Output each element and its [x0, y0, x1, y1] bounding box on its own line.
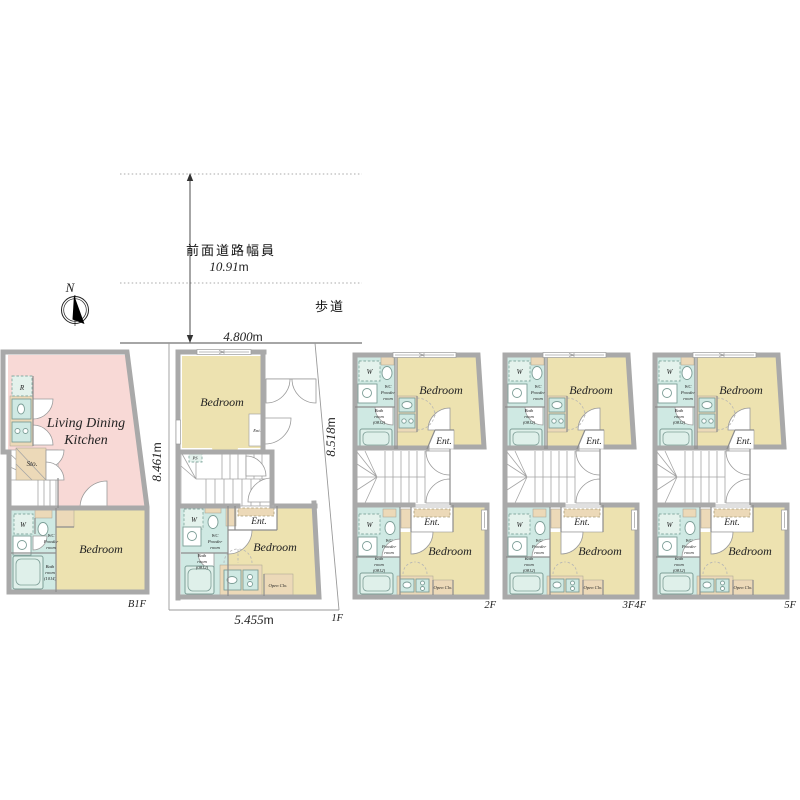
wc-label: room: [534, 550, 544, 555]
toilet-icon: [38, 523, 48, 536]
wc-label: WC: [536, 538, 544, 543]
burner-icon: [702, 419, 706, 423]
ent-label: Ent.: [435, 437, 452, 447]
sink-bowl-icon: [402, 402, 412, 409]
wc-label: WC: [385, 384, 393, 389]
toilet-tank: [683, 509, 696, 517]
room-label-bedroom: Bedroom: [728, 544, 772, 558]
bath-label: room: [197, 559, 207, 564]
room-label-bedroom: Bedroom: [200, 395, 244, 409]
sink-bowl-icon: [702, 402, 712, 409]
wc-label: WC: [48, 533, 56, 538]
toilet-tank: [681, 357, 694, 365]
window-icon: [393, 353, 456, 358]
floor-plan-drawing: 前面道路幅員 10.91m 歩道 4.800m 8.461m 8.518m 5.…: [0, 0, 800, 800]
basin-bowl-icon: [513, 389, 522, 398]
room-label-bedroom: Bedroom: [719, 383, 763, 397]
dim-frontage: 4.800m: [223, 329, 262, 344]
burner-icon: [721, 581, 725, 585]
burner-icon: [23, 429, 28, 434]
bath-label: room: [374, 562, 384, 567]
wc-label: room: [533, 396, 543, 401]
window-icon: [693, 353, 756, 358]
wc-label: Powder: [530, 390, 546, 395]
ent-label: Ent.: [735, 437, 752, 447]
pipe-space-label: PS: [191, 456, 198, 461]
toilet-tank: [35, 510, 52, 518]
ent-label: Ent.: [250, 517, 267, 527]
wc-label: room: [46, 545, 56, 550]
bath-label: (0812): [673, 420, 686, 425]
road-width-label: 前面道路幅員: [186, 243, 276, 258]
wc-label: WC: [535, 384, 543, 389]
shoe-cabinet: [238, 508, 274, 516]
bath-label: room: [524, 414, 534, 419]
wc-label: room: [210, 545, 220, 550]
room-label-ldk: Living Dining: [46, 416, 125, 431]
toilet-icon: [535, 522, 545, 535]
basin-bowl-icon: [188, 532, 197, 541]
bath-label: (0812): [673, 568, 686, 573]
floor-label: 5F: [784, 600, 796, 611]
basin-bowl-icon: [18, 541, 27, 550]
room-label-bedroom: Bedroom: [419, 383, 463, 397]
basin-bowl-icon: [513, 542, 522, 551]
bath-label: (1014): [44, 576, 57, 581]
room-label-ldk: Kitchen: [63, 433, 108, 448]
shoe-cabinet: [564, 509, 600, 517]
bath-label: (0812): [523, 568, 536, 573]
toilet-icon: [682, 367, 692, 380]
floor-label: 2F: [484, 600, 496, 611]
toilet-tank: [533, 509, 546, 517]
open-closet-label: Open Clo.: [269, 583, 288, 588]
toilet-tank: [531, 357, 544, 365]
wc-label: WC: [686, 538, 694, 543]
burner-icon: [559, 419, 563, 423]
burner-icon: [15, 429, 20, 434]
sidewalk-label: 歩道: [315, 299, 345, 314]
basin-bowl-icon: [363, 389, 372, 398]
dim-bottom: 5.455m: [234, 612, 273, 627]
wc-label: WC: [685, 384, 693, 389]
wc-label: WC: [386, 538, 394, 543]
ent-label: Ent.: [423, 518, 440, 528]
burner-icon: [571, 587, 575, 591]
window-icon: [632, 510, 638, 530]
north-label: N: [65, 280, 76, 295]
bath-label: room: [524, 562, 534, 567]
window-icon: [543, 353, 606, 358]
burner-icon: [721, 587, 725, 591]
road-width-unit: m: [239, 260, 249, 274]
bath-label: Bath: [675, 408, 684, 413]
window-icon: [197, 350, 251, 355]
road-width-value: 10.91m: [209, 259, 248, 274]
sanitary-lower: W WC Powder room Bath room (0812): [658, 509, 696, 594]
burner-icon: [552, 419, 556, 423]
burner-icon: [421, 581, 425, 585]
bath-label: room: [674, 414, 684, 419]
floor-label: 3F4F: [622, 600, 647, 611]
room-label-bedroom: Bedroom: [253, 540, 297, 554]
burner-icon: [402, 419, 406, 423]
burner-icon: [709, 419, 713, 423]
floor-label-b1f: B1F: [128, 599, 147, 610]
cabinet: [551, 509, 561, 528]
basin-bowl-icon: [663, 389, 672, 398]
wc-label: Powder: [531, 544, 547, 549]
burner-icon: [248, 575, 253, 580]
wc-label: room: [683, 396, 693, 401]
kitchen-stove: [243, 570, 258, 590]
basin-bowl-icon: [663, 542, 672, 551]
wc-label: Powder: [381, 544, 397, 549]
room-label-bedroom: Bedroom: [79, 542, 123, 556]
cabinet: [701, 509, 711, 528]
toilet-icon: [685, 522, 695, 535]
wc-label: Powder: [380, 390, 396, 395]
burner-icon: [248, 582, 253, 587]
road-width-number: 10.91: [209, 259, 238, 274]
ent-label: Ent.: [585, 437, 602, 447]
shoe-cabinet: [714, 509, 750, 517]
floor-plan-canvas: 前面道路幅員 10.91m 歩道 4.800m 8.461m 8.518m 5.…: [0, 0, 800, 800]
open-closet-label: Open Clo.: [434, 585, 453, 590]
window-icon: [176, 420, 181, 444]
window-icon: [482, 510, 488, 530]
window-icon: [782, 510, 788, 530]
sink-bowl-icon: [552, 402, 562, 409]
bath-label: room: [374, 414, 384, 419]
b1f-storage: Sto.: [16, 448, 64, 480]
sink-bowl-icon: [553, 582, 561, 588]
wc-label: WC: [212, 533, 220, 538]
bath-label: (0812): [373, 420, 386, 425]
wc-label: room: [384, 550, 394, 555]
burner-icon: [571, 581, 575, 585]
toilet-icon: [385, 522, 395, 535]
cabinet: [401, 509, 411, 528]
sink-bowl-icon: [703, 582, 711, 588]
bath-label: Bath: [46, 564, 55, 569]
wc-label: room: [383, 396, 393, 401]
bath-label: (0812): [523, 420, 536, 425]
toilet-icon: [532, 367, 542, 380]
bath-label: room: [45, 570, 55, 575]
burner-icon: [409, 419, 413, 423]
toilet-icon: [208, 516, 218, 529]
b1f-closet: [56, 510, 74, 527]
sink-bowl-icon: [18, 404, 25, 414]
room-label-bedroom: Bedroom: [569, 383, 613, 397]
wc-label: Powder: [681, 544, 697, 549]
bath-label: (0812): [196, 565, 209, 570]
f1-kitchen: [220, 565, 262, 596]
b1f-plan: Sto. R W WC: [3, 352, 147, 610]
ent-label: Ent.: [573, 518, 590, 528]
sanitary-lower: W WC Powder room Bath room (0812): [508, 509, 546, 594]
wc-label: Powder: [207, 539, 223, 544]
ent-label: Ent.: [723, 518, 740, 528]
open-closet-label: Open Clo.: [584, 585, 603, 590]
burner-icon: [421, 587, 425, 591]
bath-label: Bath: [198, 553, 207, 558]
dim-left: 8.461m: [149, 442, 164, 481]
toilet-tank: [383, 509, 396, 517]
bath-label: (0812): [373, 568, 386, 573]
wc-label: Powder: [680, 390, 696, 395]
basin-bowl-icon: [363, 542, 372, 551]
refrigerator-label: R: [19, 384, 25, 392]
storage-label: Sto.: [27, 460, 38, 468]
open-closet-label: Open Clo.: [734, 585, 753, 590]
toilet-icon: [382, 367, 392, 380]
sink-bowl-icon: [403, 582, 411, 588]
bath-label: Bath: [375, 408, 384, 413]
bath-label: Bath: [525, 408, 534, 413]
toilet-tank: [381, 357, 394, 365]
room-label-bedroom: Bedroom: [428, 544, 472, 558]
wc-label: room: [684, 550, 694, 555]
room-label-bedroom: Bedroom: [578, 544, 622, 558]
shoe-cabinet: [414, 509, 450, 517]
floor-label-1f: 1F: [331, 613, 343, 624]
dim-right: 8.518m: [323, 417, 338, 456]
sanitary-lower: W WC Powder room Bath room (0812): [358, 509, 396, 594]
bath-label: room: [674, 562, 684, 567]
ent-label: Ent.: [252, 428, 261, 433]
